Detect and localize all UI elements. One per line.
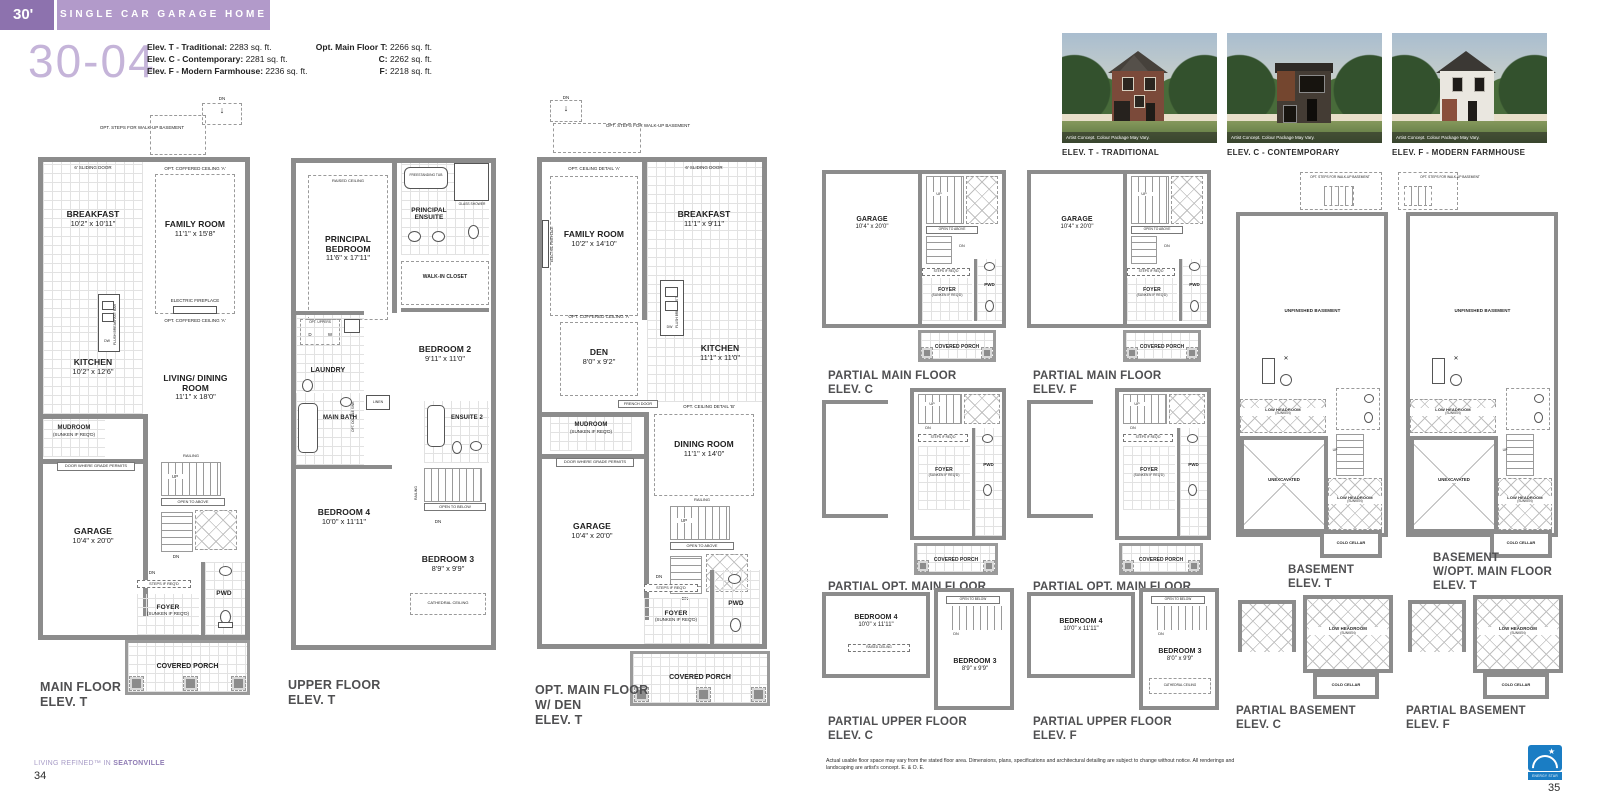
porch-post [922, 348, 932, 358]
elevation-photo-contemporary: Artist Concept. Colour Package May Vary. [1227, 33, 1382, 143]
room-dims: 10'0" x 11'11" [298, 518, 390, 526]
window [1299, 75, 1325, 93]
photo-caption: Artist Concept. Colour Package May Vary. [1227, 132, 1382, 143]
low-headroom-2-label: LOW HEADROOM (SUNKEN) [1328, 496, 1382, 504]
covered-porch: COVERED PORCH [630, 651, 770, 706]
walkup-steps [553, 123, 641, 153]
freestanding-tub: FREESTANDING TUB [404, 167, 448, 189]
room-garage: GARAGE 10'4" x 20'0" [46, 527, 140, 545]
room-pwd: PWD [976, 462, 1001, 467]
plan-title-line: W/ DEN [535, 698, 581, 712]
room-name: MUDROOM [550, 422, 632, 429]
opt-bath-outline [1336, 388, 1380, 430]
porch-post [982, 348, 992, 358]
foundation-walls: UNFINISHED BASEMENT ✕ LOW HEADROOM (SUNK… [1406, 212, 1558, 537]
wall [392, 163, 397, 313]
room-dims: 11'1" x 9'11" [652, 220, 756, 228]
room-porch-label: COVERED PORCH [633, 674, 767, 681]
walk-in-closet-outline [401, 261, 489, 305]
exterior-walls: GARAGE 10'4" x 20'0" UP OPEN TO ABOVE DN… [1027, 170, 1211, 328]
stairs-up [926, 176, 964, 224]
cooktop [665, 301, 678, 311]
room-name: ENSUITE 2 [446, 415, 488, 422]
bathtub [298, 403, 318, 453]
energy-star-label: ENERGY STAR [1528, 772, 1562, 780]
cathedral-outline: CATHEDRAL CEILING [1149, 678, 1211, 694]
plan-basement-opt: OPT. STEPS FOR WALK-UP BASEMENT UNFINISH… [1398, 172, 1573, 597]
spec-label: C: [379, 54, 388, 64]
note-coffered: OPT. COFFERED CEILING 'A' [554, 314, 644, 319]
note-up: UP [163, 474, 187, 479]
porch-post [984, 561, 994, 571]
unexcavated-fragment [1238, 600, 1296, 652]
cold-cellar: COLD CELLAR [1313, 673, 1379, 699]
room-sub: (SUNKEN) [1410, 412, 1496, 416]
spec-line: F: 2218 sq. ft. [310, 66, 432, 78]
porch-post [752, 688, 765, 701]
spec-value: 2281 sq. ft. [243, 54, 287, 64]
room-name: GARAGE [830, 216, 914, 224]
room-living-dining: LIVING/ DINING ROOM 11'1" x 18'0" [153, 374, 238, 401]
room-name: PRINCIPAL BEDROOM [306, 235, 390, 254]
brick-accent [1277, 71, 1295, 101]
photo-caption: Artist Concept. Colour Package May Vary. [1062, 132, 1217, 143]
plan-upper-floor: RAISED CEILING PRINCIPAL BEDROOM 11'6" x… [283, 130, 508, 730]
sink [1187, 434, 1198, 443]
room-dims: 10'4" x 20'0" [830, 224, 914, 231]
room-name: FOYER [137, 604, 199, 611]
plan-title-line: UPPER FLOOR [288, 678, 380, 692]
room-dims: 10'2" x 12'6" [51, 368, 135, 376]
low-headroom-walls: LOW HEADROOM (SUNKEN) [1303, 595, 1393, 673]
stairs [1123, 394, 1167, 424]
furnace [1262, 358, 1275, 384]
note-steps-if-reqd: STEPS IF REQ'D [918, 434, 968, 442]
porch-post [1123, 561, 1133, 571]
plan-title-line: PARTIAL BASEMENT [1406, 705, 1526, 717]
wall [401, 308, 489, 312]
winder-steps [195, 510, 237, 550]
note-dw: DW [101, 339, 113, 343]
room-kitchen: KITCHEN 11'1" x 11'0" [680, 344, 760, 362]
gable [1448, 55, 1474, 70]
pwd-floor [1180, 428, 1207, 536]
exterior-walls: RAISED CEILING PRINCIPAL BEDROOM 11'6" x… [291, 158, 496, 650]
note-washer: W [325, 332, 335, 337]
stairs-up [1506, 434, 1534, 476]
spec-label: Opt. Main Floor T: [316, 42, 388, 52]
hot-water-tank [1450, 374, 1462, 386]
window [1474, 77, 1485, 92]
porch-post [184, 677, 197, 690]
note-dn: DN [426, 519, 450, 524]
room-sub: (SUNKEN IF REQ'D) [644, 617, 708, 622]
room-bedroom3: BEDROOM 3 8'9" x 9'9" [408, 555, 488, 573]
note-open-to-above: OPEN TO ABOVE [1131, 226, 1183, 234]
winder-steps [964, 394, 1000, 424]
foyer-floor [922, 278, 972, 321]
opt-spec-list: Opt. Main Floor T: 2266 sq. ft. C: 2262 … [310, 42, 432, 78]
stairs-up [1131, 176, 1169, 224]
cold-cellar: COLD CELLAR [1483, 673, 1549, 699]
low-headroom-1-label: LOW HEADROOM (SUNKEN) [1410, 408, 1496, 416]
plan-title-line: ELEV. T [288, 693, 335, 707]
room-foyer: FOYER (SUNKEN IF REQ'D) [918, 468, 970, 477]
cooktop [102, 313, 114, 322]
garage-walls [822, 400, 888, 518]
walkup-steps [150, 115, 206, 155]
plan-title-partial-basement-f: PARTIAL BASEMENT ELEV. F [1406, 705, 1526, 733]
energy-star-logo: ★ ENERGY STAR [1528, 745, 1562, 781]
sink [1189, 262, 1200, 271]
spec-line: Opt. Main Floor T: 2266 sq. ft. [310, 42, 432, 54]
room-cold-cellar: COLD CELLAR [1489, 683, 1543, 688]
bedroom4-walls: BEDROOM 4 10'0" x 11'11" RAISED CEILING [822, 592, 930, 678]
kitchen-island: FLUSH BREAKFAST BAR DW [98, 294, 120, 352]
room-dims: 10'2" x 14'10" [550, 240, 638, 248]
plan-title-main-floor: MAIN FLOOR ELEV. T [40, 680, 121, 710]
room-family: FAMILY ROOM 10'2" x 14'10" [550, 230, 638, 248]
low-headroom-1-label: LOW HEADROOM (SUNKEN) [1240, 408, 1326, 416]
exterior-walls: GARAGE 10'4" x 20'0" UP OPEN TO ABOVE DN… [822, 170, 1006, 328]
cold-cellar: COLD CELLAR [1320, 530, 1382, 558]
spec-list: Elev. T - Traditional: 2283 sq. ft. Elev… [147, 42, 307, 78]
plan-title-line: PARTIAL MAIN FLOOR [828, 370, 956, 382]
room-cold-cellar: COLD CELLAR [1496, 541, 1546, 546]
plan-partial-basement-c: LOW HEADROOM (SUNKEN) COLD CELLAR PARTIA… [1228, 595, 1403, 740]
room-name: LIVING/ DINING ROOM [153, 374, 238, 393]
room-garage: GARAGE 10'4" x 20'0" [1035, 216, 1119, 231]
room-dims: 10'4" x 20'0" [46, 537, 140, 545]
note-grade-door: DOOR WHERE GRADE PERMITS [57, 462, 135, 471]
elevation-label-t: ELEV. T - TRADITIONAL [1062, 148, 1159, 157]
room-pwd: PWD [1183, 282, 1206, 287]
plan-title-basement-opt: BASEMENT W/OPT. MAIN FLOOR ELEV. T [1433, 552, 1552, 593]
spec-label: F: [380, 66, 388, 76]
spec-line: Elev. F - Modern Farmhouse: 2236 sq. ft. [147, 66, 307, 78]
room-bedroom3: BEDROOM 3 8'9" x 9'9" [940, 658, 1010, 673]
plan-opt-main-floor: DN ↓ OPT. STEPS FOR WALK-UP BASEMENT OPT… [525, 95, 780, 740]
room-unfinished-basement: UNFINISHED BASEMENT [1445, 308, 1520, 313]
room-sub: (SUNKEN IF REQ'D) [922, 294, 972, 298]
foundation-walls: UNFINISHED BASEMENT ✕ LOW HEADROOM (SUNK… [1236, 212, 1388, 537]
room-sub: (SUNKEN) [1479, 632, 1557, 636]
room-name: BEDROOM 4 [1035, 618, 1127, 626]
room-bedroom3: BEDROOM 3 8'0" x 9'9" [1145, 648, 1215, 663]
toilet-tank [218, 622, 233, 628]
note-railing: RAILING [171, 454, 211, 459]
note-cathedral: CATHEDRAL CEILING [1150, 684, 1210, 688]
note-linen: LINEN [367, 400, 389, 404]
room-pwd: PWD [714, 600, 758, 607]
porch-post [130, 677, 143, 690]
room-breakfast: BREAKFAST 10'2" x 10'11" [48, 210, 138, 228]
linen-closet: LINEN [366, 395, 390, 410]
room-dims: 11'1" x 11'0" [680, 354, 760, 362]
plan-title-line: PARTIAL UPPER FLOOR [828, 716, 967, 728]
front-door [1468, 101, 1477, 121]
room-kitchen: KITCHEN 10'2" x 12'6" [51, 358, 135, 376]
room-principal-ensuite: PRINCIPAL ENSUITE [399, 207, 459, 222]
spec-label: Elev. F - Modern Farmhouse: [147, 66, 263, 76]
stairs-up [1336, 434, 1364, 476]
note-dn: DN [918, 426, 938, 430]
toilet [468, 225, 479, 239]
toilet [452, 441, 462, 454]
winder-steps [1171, 176, 1203, 224]
room-sub: (SUNKEN) [1498, 500, 1552, 504]
room-dims: 10'2" x 10'11" [48, 220, 138, 228]
room-sub: (SUNKEN IF REQ'D) [1123, 474, 1175, 478]
garage-door [1442, 99, 1457, 121]
foyer-floor [918, 446, 970, 510]
spec-value: 2266 sq. ft. [388, 42, 432, 52]
plan-basement-t: OPT. STEPS FOR WALK-UP BASEMENT UNFINISH… [1228, 172, 1398, 597]
arrow-down-icon: ↓ [208, 105, 236, 115]
sink [408, 231, 421, 242]
spec-line: Elev. C - Contemporary: 2281 sq. ft. [147, 54, 307, 66]
note-dn: DN [946, 632, 966, 636]
room-name: MUDROOM [43, 425, 105, 432]
porch-post [697, 688, 710, 701]
page-number-left: 34 [34, 770, 46, 782]
breakfast-floor [43, 162, 143, 327]
disclaimer: Actual usable floor space may vary from … [826, 758, 1246, 772]
note-open-to-below: OPEN TO BELOW [1151, 596, 1205, 604]
room-dims: 10'4" x 20'0" [1035, 224, 1119, 231]
room-pwd: PWD [1181, 462, 1206, 467]
room-dims: 10'0" x 11'11" [830, 622, 922, 629]
low-headroom-2-label: LOW HEADROOM (SUNKEN) [1498, 496, 1552, 504]
note-walkup: OPT. STEPS FOR WALK-UP BASEMENT [1400, 176, 1500, 180]
room-name: LAUNDRY [296, 367, 360, 375]
note-up: UP [928, 192, 950, 196]
note-shower: GLASS SHOWER [456, 203, 488, 207]
note-steps-if-reqd: STEPS IF REQ'D [137, 580, 191, 588]
brochure-spread: 30' SINGLE CAR GARAGE HOME 30-04 Elev. T… [0, 0, 1600, 801]
fireplace [173, 306, 217, 314]
room-foyer: FOYER (SUNKEN IF REQ'D) [1127, 288, 1177, 297]
spec-value: 2236 sq. ft. [263, 66, 307, 76]
room-dims: 11'6" x 17'11" [306, 254, 390, 262]
spec-value: 2262 sq. ft. [388, 54, 432, 64]
room-sub: (SUNKEN) [1328, 500, 1382, 504]
stairs-down [926, 236, 952, 264]
room-laundry: LAUNDRY [296, 367, 360, 375]
room-dims: 11'1" x 15'8" [155, 230, 235, 238]
entry-walls: UP DN STEPS IF REQ'D FOYER (SUNKEN IF RE… [910, 388, 1006, 540]
page-banner: SINGLE CAR GARAGE HOME [57, 0, 270, 30]
wall [296, 465, 392, 469]
sink [1364, 394, 1374, 403]
bathtub [427, 405, 445, 447]
room-unexcavated: UNEXCAVATED [1246, 478, 1322, 483]
plan-title-line: ELEV. T [535, 713, 582, 727]
note-up: UP [672, 518, 696, 523]
note-dn: DN [1157, 244, 1177, 248]
plan-title-line: ELEV. T [40, 695, 87, 709]
garage-door [1114, 101, 1130, 121]
unexcavated-area [1410, 436, 1498, 533]
toilet [1534, 412, 1543, 423]
note-up: UP [1326, 448, 1344, 452]
toilet [983, 484, 992, 496]
covered-porch: COVERED PORCH [914, 543, 998, 575]
spec-value: 2283 sq. ft. [227, 42, 271, 52]
plan-title-line: ELEV. T [1288, 578, 1332, 590]
hot-water-tank [1280, 374, 1292, 386]
front-door [1146, 103, 1155, 121]
walkup-stairs [1404, 186, 1432, 206]
note-dn3: DN [646, 574, 672, 579]
note-dn: DN [552, 95, 580, 100]
stairs-down [1131, 236, 1157, 264]
model-number: 30-04 [28, 34, 156, 88]
note-dn3: DN [139, 570, 165, 575]
room-name: FOYER [644, 610, 708, 617]
elevation-label-c: ELEV. C - CONTEMPORARY [1227, 148, 1340, 157]
plan-title-partial-upper-f: PARTIAL UPPER FLOOR ELEV. F [1033, 716, 1172, 744]
note-walkup: OPT. STEPS FOR WALK-UP BASEMENT [1286, 176, 1394, 180]
plan-title-line: MAIN FLOOR [40, 680, 121, 694]
room-bedroom4: BEDROOM 4 10'0" x 11'11" [298, 508, 390, 526]
room-den: DEN 8'0" x 9'2" [560, 348, 638, 366]
room-unexcavated: UNEXCAVATED [1416, 478, 1492, 483]
arrow-down-icon: ↓ [552, 103, 580, 113]
toilet [985, 300, 994, 312]
low-headroom-label: LOW HEADROOM (SUNKEN) [1479, 627, 1557, 635]
tagline: LIVING REFINED™ IN SEATONVILLE [34, 760, 165, 767]
plan-partial-upper-f: BEDROOM 4 10'0" x 11'11" OPEN TO BELOW D… [1023, 588, 1223, 748]
toilet [730, 618, 741, 632]
room-sub: (SUNKEN) [1309, 632, 1387, 636]
room-name: GARAGE [1035, 216, 1119, 224]
room-dims: 11'1" x 18'0" [153, 393, 238, 401]
room-foyer: FOYER (SUNKEN IF REQ'D) [922, 288, 972, 297]
glass-shower [454, 163, 489, 201]
covered-porch: COVERED PORCH [1123, 330, 1201, 362]
room-garage: GARAGE 10'4" x 20'0" [544, 522, 640, 540]
window [1122, 77, 1134, 91]
note-fireplace: ELECTRIC FIREPLACE [165, 298, 225, 303]
room-sub: (SUNKEN IF REQ'D) [918, 474, 970, 478]
pwd-floor [975, 428, 1002, 536]
star-icon: ★ [1548, 747, 1555, 756]
sink [432, 231, 445, 242]
note-ceiling-a: OPT. CEILING DETAIL 'A' [550, 166, 638, 171]
stairwell [946, 606, 1006, 630]
room-sub: (SUNKEN IF REQ'D) [550, 429, 632, 434]
tagline-community: SEATONVILLE [113, 760, 165, 767]
furnace [1432, 358, 1445, 384]
plan-title-line: BASEMENT [1288, 564, 1354, 576]
plan-title-line: ELEV. F [1406, 719, 1450, 731]
room-cold-cellar: COLD CELLAR [1319, 683, 1373, 688]
note-sliding-door: 6' SLIDING DOOR [51, 165, 135, 170]
room-sub: (SUNKEN IF REQ'D) [1127, 294, 1177, 298]
room-wic: WALK-IN CLOSET [401, 275, 489, 281]
note-open-to-below: OPEN TO BELOW [946, 596, 1000, 604]
room-name: UNFINISHED BASEMENT [1275, 308, 1350, 313]
plan-title-opt-main: OPT. MAIN FLOOR W/ DEN ELEV. T [535, 683, 648, 728]
note-double-sink: OPT. DOUBLE SINK [352, 395, 356, 439]
porch-post [232, 677, 245, 690]
plan-title-upper-floor: UPPER FLOOR ELEV. T [288, 678, 380, 708]
floor-drain-icon: ✕ [1278, 356, 1294, 363]
porch-post [1127, 348, 1137, 358]
floor-drain-icon: ✕ [1448, 356, 1464, 363]
covered-porch: COVERED PORCH [918, 330, 996, 362]
room-foyer: FOYER (SUNKEN IF REQ'D) [137, 604, 199, 616]
plan-title-line: PARTIAL UPPER FLOOR [1033, 716, 1172, 728]
winder-steps [1169, 394, 1205, 424]
room-dims: 8'0" x 9'9" [1145, 656, 1215, 663]
porch-post [1189, 561, 1199, 571]
fireplace [542, 220, 549, 268]
plan-partial-opt-main-c: UP DN STEPS IF REQ'D FOYER (SUNKEN IF RE… [818, 388, 1013, 603]
note-coffered-2: OPT. COFFERED CEILING 'A' [155, 318, 235, 323]
note-dw: DW [663, 325, 676, 329]
plan-title-basement-t: BASEMENT ELEV. T [1288, 564, 1354, 592]
entry-walls: UP DN STEPS IF REQ'D FOYER (SUNKEN IF RE… [1115, 388, 1211, 540]
note-ceiling-b: OPT. CEILING DETAIL 'B' [664, 404, 754, 409]
room-sub: (SUNKEN) [1240, 412, 1326, 416]
plan-partial-basement-f: LOW HEADROOM (SUNKEN) COLD CELLAR PARTIA… [1398, 595, 1573, 740]
arc-icon [1528, 750, 1562, 771]
note-steps-if-reqd: STEPS IF REQ'D [1127, 268, 1175, 276]
elevation-photo-traditional: Artist Concept. Colour Package May Vary. [1062, 33, 1217, 143]
room-unfinished-basement: UNFINISHED BASEMENT [1275, 308, 1350, 313]
note-dryer: D [305, 332, 315, 337]
note-dn: DN [1151, 632, 1171, 636]
stairwell [1151, 606, 1211, 630]
window [1283, 105, 1297, 123]
plan-title-line: ELEV. C [828, 730, 873, 742]
note-opt-uppers: OPT. UPPERS [301, 321, 339, 325]
toilet [1364, 412, 1373, 423]
gable [1120, 55, 1148, 71]
window [1144, 77, 1156, 91]
note-coffered-1: OPT. COFFERED CEILING 'A' [155, 166, 235, 171]
laundry-sink [344, 319, 360, 333]
room-name: PWD [205, 590, 243, 597]
note-dn: DN [208, 96, 236, 101]
room-garage: GARAGE 10'4" x 20'0" [830, 216, 914, 231]
plan-title-line: BASEMENT [1433, 552, 1499, 564]
sink [102, 301, 114, 310]
room-dims: 11'1" x 14'0" [654, 450, 754, 458]
lot-width-badge: 30' [0, 0, 54, 30]
room-name: PWD [714, 600, 758, 607]
room-mudroom: MUDROOM (SUNKEN IF REQ'D) [550, 422, 632, 434]
sink [982, 434, 993, 443]
plan-title-partial-upper-c: PARTIAL UPPER FLOOR ELEV. C [828, 716, 967, 744]
plan-partial-main-f: GARAGE 10'4" x 20'0" UP OPEN TO ABOVE DN… [1023, 168, 1218, 403]
room-dims: 10'4" x 20'0" [544, 532, 640, 540]
room-dims: 8'9" x 9'9" [408, 565, 488, 573]
bedroom3-walls: OPEN TO BELOW DN BEDROOM 3 8'0" x 9'9" C… [1139, 588, 1219, 710]
sink [340, 397, 352, 407]
sink [219, 566, 232, 576]
sink [1534, 394, 1544, 403]
room-foyer: FOYER (SUNKEN IF REQ'D) [644, 610, 708, 622]
sink [470, 441, 482, 451]
stairwell [424, 468, 482, 502]
elevation-label-f: ELEV. F - MODERN FARMHOUSE [1392, 148, 1525, 157]
room-name: PRINCIPAL ENSUITE [399, 207, 459, 222]
note-up: UP [1127, 402, 1147, 406]
stairs [918, 394, 962, 424]
